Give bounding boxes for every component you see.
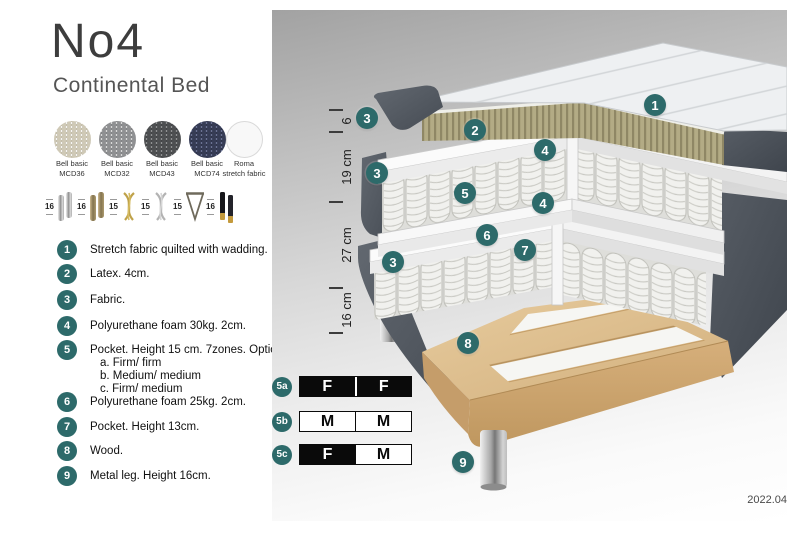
item-text: Wood. — [90, 445, 123, 457]
firmness-cell: F — [300, 377, 355, 396]
leg-twist-silver-icon — [152, 190, 172, 224]
firmness-row-5c: 5c F M — [272, 444, 412, 465]
firmness-cell: M — [300, 412, 355, 431]
dimension-label: 19 cm — [339, 137, 355, 197]
firmness-box: M M — [299, 411, 412, 432]
leg-height: 15 — [141, 199, 150, 215]
item-number-badge: 9 — [57, 466, 77, 486]
item-text: Polyurethane foam 30kg. 2cm. — [90, 320, 246, 332]
firmness-row-5a: 5a F F — [272, 376, 412, 397]
callout-1: 1 — [644, 94, 666, 116]
leg-option: 15 — [109, 187, 140, 227]
leg-option: 16 — [45, 187, 76, 227]
item-text: Fabric. — [90, 294, 125, 306]
leg-height: 16 — [206, 199, 215, 215]
swatch-label: Romastretch fabric — [216, 159, 272, 179]
callout-5: 5 — [454, 182, 476, 204]
bed-illustration-panel: 6 19 cm 27 cm 16 cm 1 2 3 4 3 5 4 6 7 3 … — [272, 10, 787, 521]
item-number-badge: 8 — [57, 441, 77, 461]
item-option: c. Firm/ medium — [100, 383, 182, 395]
item-number-badge: 1 — [57, 240, 77, 260]
dimension-label: 27 cm — [339, 215, 355, 275]
fabric-swatch-gray-icon — [99, 121, 136, 158]
item-text: Polyurethane foam 25kg. 2cm. — [90, 396, 246, 408]
mattress-side-fabric-right — [722, 128, 787, 172]
product-sheet: No4 Continental Bed Bell basicMCD36 Bell… — [0, 0, 800, 533]
item-text: Pocket. Height 15 cm. 7zones. Option: — [90, 344, 286, 356]
item-option: b. Medium/ medium — [100, 370, 201, 382]
firmness-row-5b: 5b M M — [272, 411, 412, 432]
leg-height: 15 — [109, 199, 118, 215]
callout-4-upper: 4 — [534, 139, 556, 161]
item-number-badge: 6 — [57, 392, 77, 412]
fabric-swatch-navy-icon — [189, 121, 226, 158]
fabric-swatch-darkgray-icon — [144, 121, 181, 158]
leg-height: 16 — [77, 199, 86, 215]
fabric-swatch-beige-icon — [54, 121, 91, 158]
callout-7: 7 — [514, 239, 536, 261]
firmness-badge: 5a — [272, 377, 292, 397]
callout-9: 9 — [452, 451, 474, 473]
page-title: No4 — [51, 14, 145, 69]
leg-option: 15 — [141, 187, 172, 227]
item-text: Metal leg. Height 16cm. — [90, 470, 211, 482]
callout-4-lower: 4 — [532, 192, 554, 214]
leg-height: 16 — [45, 199, 54, 215]
leg-cylinder-bronze-icon — [88, 190, 108, 224]
dimension-tick — [329, 201, 343, 203]
bed-front-leg — [480, 430, 507, 491]
firmness-cell: M — [355, 412, 411, 431]
item-number-badge: 4 — [57, 316, 77, 336]
leg-hairpin-icon — [184, 190, 208, 224]
info-column: No4 Continental Bed Bell basicMCD36 Bell… — [0, 0, 272, 533]
callout-6: 6 — [476, 224, 498, 246]
item-text: Pocket. Height 13cm. — [90, 421, 199, 433]
callout-3-top: 3 — [356, 107, 378, 129]
callout-3-middle: 3 — [366, 162, 388, 184]
item-number-badge: 3 — [57, 290, 77, 310]
firmness-badge: 5c — [272, 445, 292, 465]
firmness-cell: M — [355, 445, 411, 464]
firmness-box: F F — [299, 376, 412, 397]
leg-cylinder-silver-icon — [56, 190, 76, 224]
item-text: Latex. 4cm. — [90, 268, 149, 280]
fabric-swatch-white-icon — [226, 121, 263, 158]
firmness-box: F M — [299, 444, 412, 465]
leg-option: 16 — [77, 187, 108, 227]
callout-8: 8 — [457, 332, 479, 354]
dimension-label: 16 cm — [339, 280, 355, 340]
version-label: 2022.04 — [712, 494, 787, 506]
leg-twist-gold-icon — [120, 190, 140, 224]
firmness-badge: 5b — [272, 412, 292, 432]
callout-3-bottom: 3 — [382, 251, 404, 273]
page-subtitle: Continental Bed — [53, 74, 210, 98]
item-number-badge: 5 — [57, 340, 77, 360]
firmness-cell: F — [355, 377, 412, 396]
leg-height: 15 — [173, 199, 182, 215]
leg-option: 16 — [206, 187, 237, 227]
item-number-badge: 7 — [57, 417, 77, 437]
item-text: Stretch fabric quilted with wadding. — [90, 244, 268, 256]
item-number-badge: 2 — [57, 264, 77, 284]
callout-2: 2 — [464, 119, 486, 141]
firmness-cell: F — [300, 445, 355, 464]
leg-black-brass-icon — [217, 189, 237, 225]
leg-option: 15 — [173, 187, 208, 227]
item-option: a. Firm/ firm — [100, 357, 161, 369]
